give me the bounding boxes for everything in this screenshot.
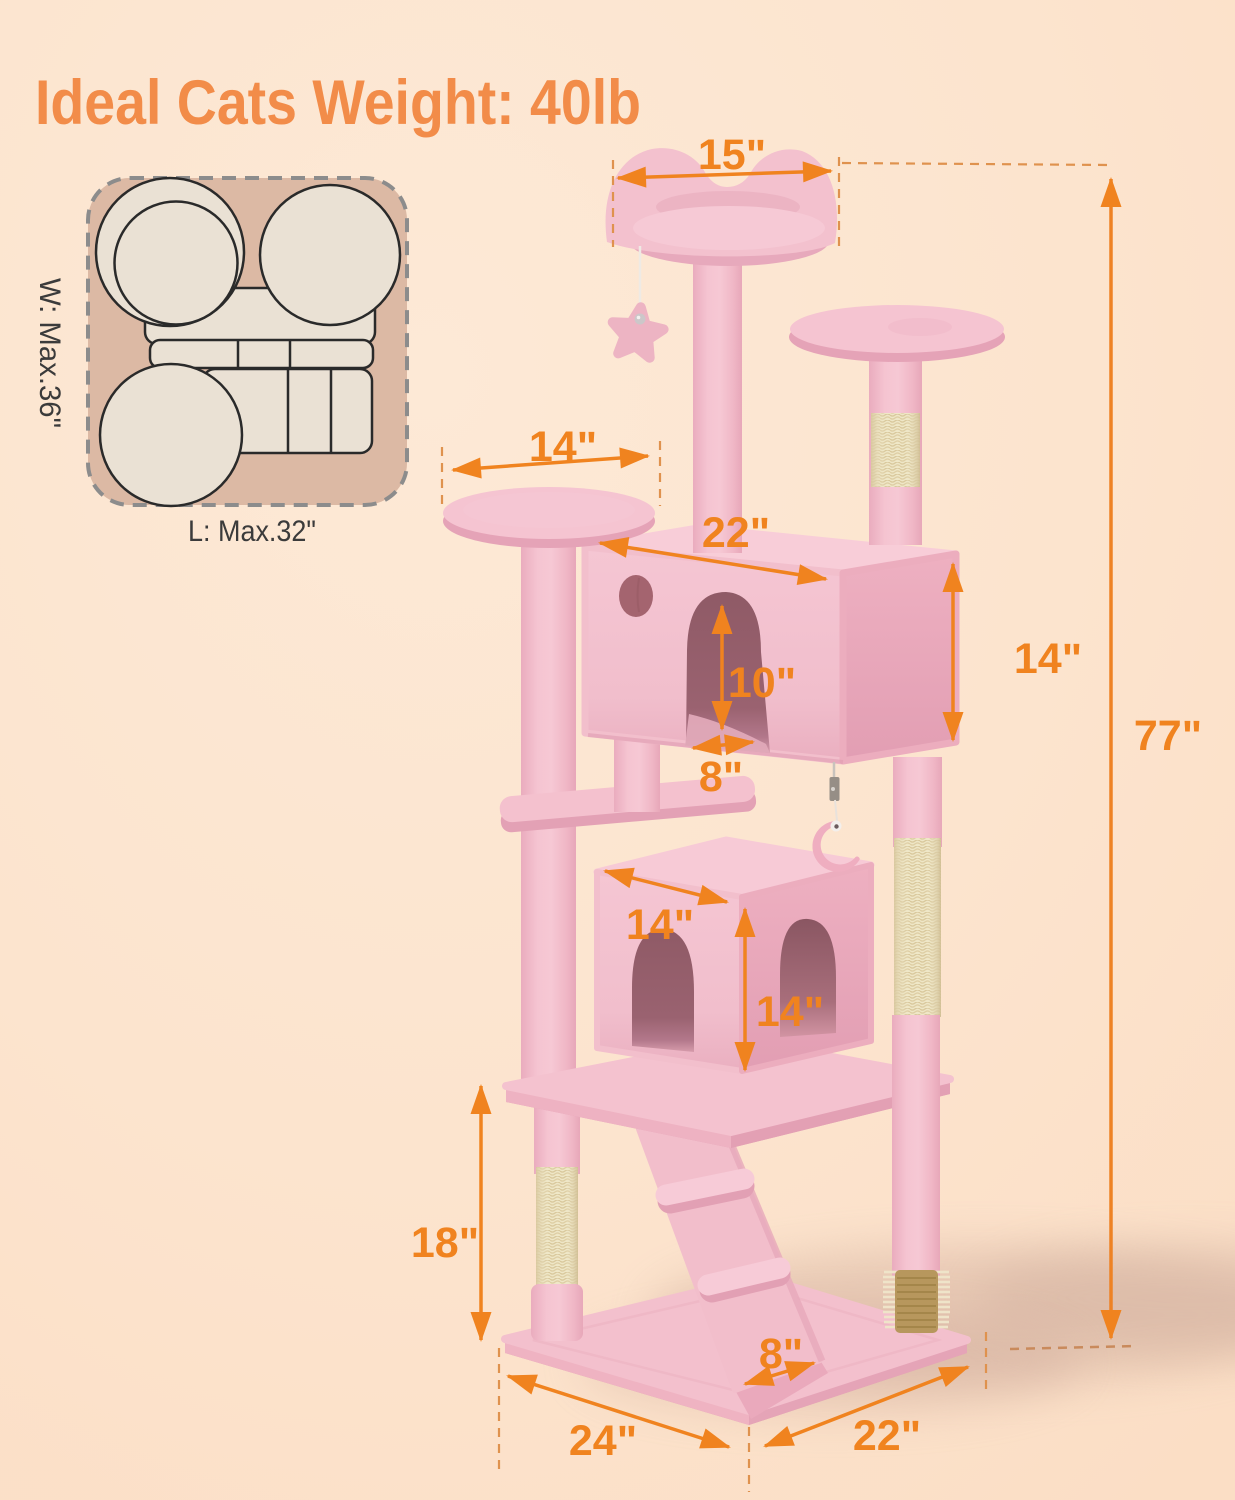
svg-text:W: Max.36": W: Max.36"	[33, 278, 66, 428]
svg-text:14": 14"	[626, 901, 694, 949]
svg-text:14": 14"	[1014, 635, 1082, 683]
svg-text:14": 14"	[756, 988, 824, 1036]
svg-text:77": 77"	[1134, 712, 1202, 760]
svg-text:Ideal Cats Weight: 40lb: Ideal Cats Weight: 40lb	[35, 68, 641, 138]
svg-text:8": 8"	[759, 1330, 803, 1378]
svg-text:18": 18"	[411, 1219, 479, 1267]
svg-text:22": 22"	[702, 509, 770, 557]
svg-text:10": 10"	[728, 659, 796, 707]
svg-text:15": 15"	[698, 131, 766, 179]
svg-text:8": 8"	[699, 753, 743, 801]
svg-text:24": 24"	[569, 1417, 637, 1465]
svg-text:22": 22"	[853, 1412, 921, 1460]
svg-text:14": 14"	[529, 423, 597, 471]
svg-text:L: Max.32": L: Max.32"	[188, 515, 316, 548]
